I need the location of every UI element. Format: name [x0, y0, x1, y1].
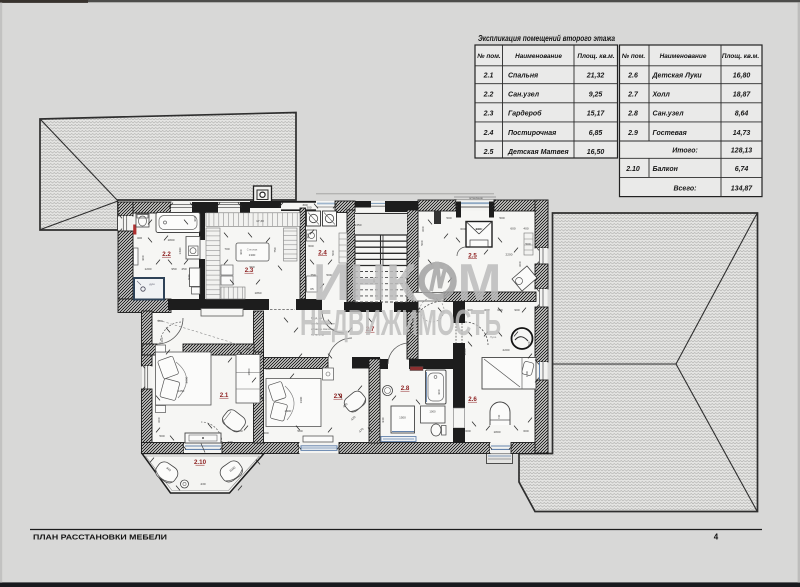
svg-text:530: 530	[187, 274, 191, 279]
svg-text:6,74: 6,74	[735, 166, 749, 173]
svg-text:8,64: 8,64	[735, 111, 749, 118]
svg-text:900: 900	[239, 249, 243, 254]
svg-text:500: 500	[297, 429, 302, 433]
svg-text:470: 470	[227, 440, 232, 444]
svg-text:1250: 1250	[417, 250, 421, 257]
svg-text:Экспликация помещений второго: Экспликация помещений второго этажа	[478, 34, 616, 43]
svg-text:940: 940	[381, 417, 385, 422]
svg-text:400: 400	[306, 233, 310, 238]
svg-text:2300: 2300	[285, 409, 292, 413]
svg-text:2.9: 2.9	[627, 130, 638, 137]
svg-text:Наименование: Наименование	[515, 53, 562, 60]
svg-text:Детская Луки: Детская Луки	[652, 73, 703, 80]
svg-text:1200: 1200	[525, 370, 529, 377]
svg-text:Детская Матвея: Детская Матвея	[507, 149, 569, 156]
svg-text:4: 4	[714, 533, 719, 542]
svg-text:1800: 1800	[168, 238, 175, 242]
svg-text:900: 900	[141, 255, 145, 260]
svg-text:2.8: 2.8	[627, 111, 638, 118]
svg-text:1860: 1860	[255, 291, 262, 295]
svg-text:16,80: 16,80	[733, 73, 751, 80]
svg-text:134,87: 134,87	[731, 186, 754, 193]
svg-text:Стеллаж: Стеллаж	[247, 248, 258, 252]
svg-text:900: 900	[437, 389, 441, 394]
svg-text:600: 600	[510, 227, 515, 231]
svg-text:600: 600	[160, 337, 164, 342]
svg-text:128,13: 128,13	[731, 148, 753, 155]
svg-text:1900: 1900	[299, 396, 303, 403]
svg-text:Гардероб: Гардероб	[508, 110, 542, 118]
svg-text:Гостевая: Гостевая	[653, 130, 687, 137]
svg-text:600: 600	[460, 227, 465, 231]
svg-text:500: 500	[499, 216, 504, 220]
svg-text:500: 500	[245, 347, 250, 351]
svg-text:21,32: 21,32	[586, 73, 605, 80]
svg-text:17,30: 17,30	[256, 219, 264, 223]
svg-text:450: 450	[181, 267, 186, 271]
svg-text:600: 600	[421, 226, 425, 231]
svg-text:740: 740	[497, 414, 501, 419]
svg-text:14,73: 14,73	[733, 130, 751, 137]
svg-text:900: 900	[193, 216, 197, 221]
svg-text:2.10: 2.10	[625, 166, 640, 173]
svg-text:500: 500	[420, 240, 424, 245]
svg-text:430: 430	[200, 482, 205, 486]
svg-text:750: 750	[273, 247, 277, 252]
svg-text:№ пом.: № пом.	[622, 53, 646, 60]
svg-text:600: 600	[523, 429, 528, 433]
svg-text:Площ. кв.м.: Площ. кв.м.	[722, 53, 760, 60]
svg-text:2200: 2200	[503, 348, 510, 352]
svg-text:НЕДВИЖИМОСТЬ: НЕДВИЖИМОСТЬ	[300, 302, 501, 343]
svg-text:500: 500	[159, 434, 164, 438]
svg-text:1200: 1200	[145, 267, 152, 271]
svg-text:16,50: 16,50	[587, 149, 605, 156]
svg-text:300: 300	[302, 203, 307, 207]
svg-text:Холл: Холл	[652, 92, 671, 99]
svg-text:2.5: 2.5	[483, 149, 494, 156]
svg-text:400: 400	[523, 227, 528, 231]
svg-text:400: 400	[237, 429, 242, 433]
svg-text:№ пом.: № пом.	[477, 53, 501, 60]
svg-text:ПЛАН РАССТАНОВКИ МЕБЕЛИ: ПЛАН РАССТАНОВКИ МЕБЕЛИ	[33, 533, 167, 542]
svg-text:500: 500	[157, 319, 162, 323]
svg-text:500: 500	[525, 242, 530, 246]
svg-text:2.6: 2.6	[627, 73, 638, 80]
svg-text:6,85: 6,85	[589, 130, 603, 137]
svg-text:900: 900	[514, 308, 519, 312]
svg-text:1300: 1300	[249, 253, 256, 257]
svg-text:15,17: 15,17	[587, 111, 606, 118]
svg-text:Наименование: Наименование	[660, 53, 707, 60]
svg-text:Спальня: Спальня	[508, 73, 538, 80]
svg-text:950: 950	[171, 267, 176, 271]
svg-text:Сан.узел: Сан.узел	[653, 111, 685, 118]
svg-text:600: 600	[308, 244, 313, 248]
svg-text:2.4: 2.4	[483, 130, 494, 137]
svg-text:600: 600	[527, 341, 531, 346]
svg-text:9,25: 9,25	[589, 92, 603, 99]
svg-text:2200: 2200	[506, 253, 513, 257]
svg-text:1390: 1390	[178, 247, 182, 254]
svg-text:Площ. кв.м.: Площ. кв.м.	[577, 53, 615, 60]
svg-text:600: 600	[465, 429, 470, 433]
svg-text:1200: 1200	[463, 348, 467, 355]
svg-text:500: 500	[263, 431, 268, 435]
svg-text:Балкон: Балкон	[653, 166, 679, 173]
svg-text:2.2: 2.2	[483, 92, 494, 99]
svg-text:2.1: 2.1	[483, 73, 494, 80]
svg-text:Сан.узел: Сан.узел	[508, 92, 540, 99]
svg-text:1350: 1350	[355, 223, 362, 227]
svg-text:душ: душ	[149, 282, 155, 286]
svg-text:400: 400	[137, 236, 142, 240]
svg-text:18,87: 18,87	[733, 92, 752, 99]
svg-text:400: 400	[475, 227, 480, 231]
svg-text:1800: 1800	[494, 430, 501, 434]
svg-text:1500: 1500	[399, 416, 406, 420]
svg-text:2.3: 2.3	[483, 111, 494, 118]
svg-text:500: 500	[446, 216, 451, 220]
svg-text:2.7: 2.7	[627, 92, 639, 99]
svg-text:600: 600	[518, 261, 522, 266]
svg-text:1000: 1000	[429, 410, 436, 414]
svg-text:700: 700	[224, 247, 229, 251]
svg-text:2000: 2000	[185, 376, 189, 383]
svg-text:Итого:: Итого:	[672, 148, 698, 155]
svg-text:600: 600	[157, 417, 161, 422]
svg-text:3250: 3250	[178, 389, 185, 393]
svg-text:500: 500	[265, 367, 270, 371]
svg-text:Всего:: Всего:	[673, 186, 696, 193]
svg-text:1800: 1800	[247, 368, 251, 375]
svg-text:Постирочная: Постирочная	[508, 130, 556, 137]
